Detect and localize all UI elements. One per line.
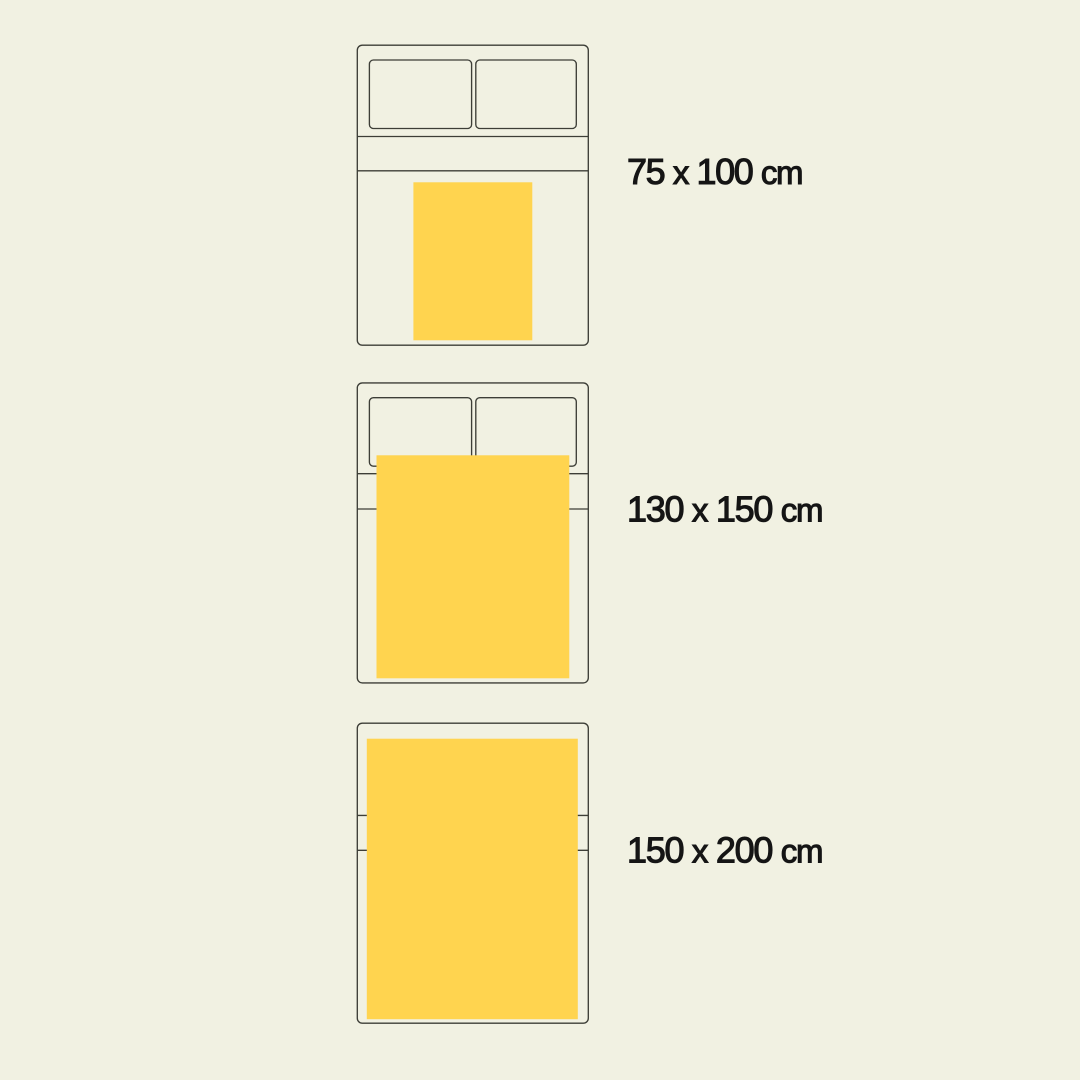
svg-text:150 x 200 cm: 150 x 200 cm bbox=[627, 829, 824, 870]
svg-text:75 x 100 cm: 75 x 100 cm bbox=[627, 151, 804, 192]
svg-text:130 x 150 cm: 130 x 150 cm bbox=[627, 489, 824, 530]
